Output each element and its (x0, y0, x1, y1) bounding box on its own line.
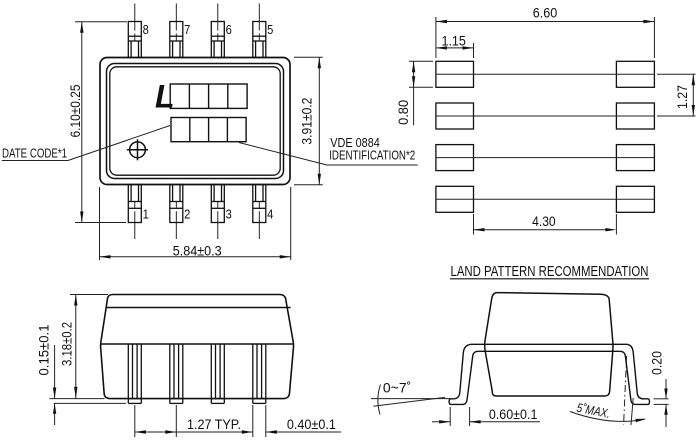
svg-text:0.20: 0.20 (650, 351, 665, 375)
svg-text:6.10±0.25: 6.10±0.25 (68, 85, 83, 138)
svg-text:5˚MAX.: 5˚MAX. (575, 401, 611, 421)
svg-text:0.40±0.1: 0.40±0.1 (287, 417, 336, 432)
svg-text:7: 7 (184, 22, 190, 37)
svg-text:0.80: 0.80 (396, 100, 411, 125)
svg-text:2: 2 (184, 207, 190, 222)
svg-text:4: 4 (267, 207, 273, 222)
svg-text:1.27 TYP.: 1.27 TYP. (187, 417, 241, 432)
svg-text:8: 8 (143, 22, 149, 37)
svg-text:1.15: 1.15 (441, 33, 466, 48)
svg-text:3.91±0.2: 3.91±0.2 (300, 98, 315, 145)
svg-text:LAND PATTERN RECOMMENDATION: LAND PATTERN RECOMMENDATION (451, 263, 649, 280)
svg-text:1.27: 1.27 (675, 85, 690, 109)
svg-text:3.18±0.2: 3.18±0.2 (60, 322, 75, 366)
svg-text:0.60±0.1: 0.60±0.1 (489, 407, 538, 422)
svg-text:IDENTIFICATION*2: IDENTIFICATION*2 (329, 149, 415, 163)
svg-text:5: 5 (267, 22, 273, 37)
svg-text:4.30: 4.30 (532, 214, 556, 229)
svg-text:1: 1 (143, 207, 149, 222)
svg-text:0.15±0.1: 0.15±0.1 (37, 325, 52, 376)
svg-text:3: 3 (226, 207, 232, 222)
svg-text:DATE CODE*1: DATE CODE*1 (2, 146, 67, 160)
svg-text:0~7˚: 0~7˚ (383, 380, 411, 396)
svg-text:6.60: 6.60 (533, 6, 558, 21)
svg-text:5.84±0.3: 5.84±0.3 (173, 243, 222, 258)
svg-text:6: 6 (226, 22, 232, 37)
